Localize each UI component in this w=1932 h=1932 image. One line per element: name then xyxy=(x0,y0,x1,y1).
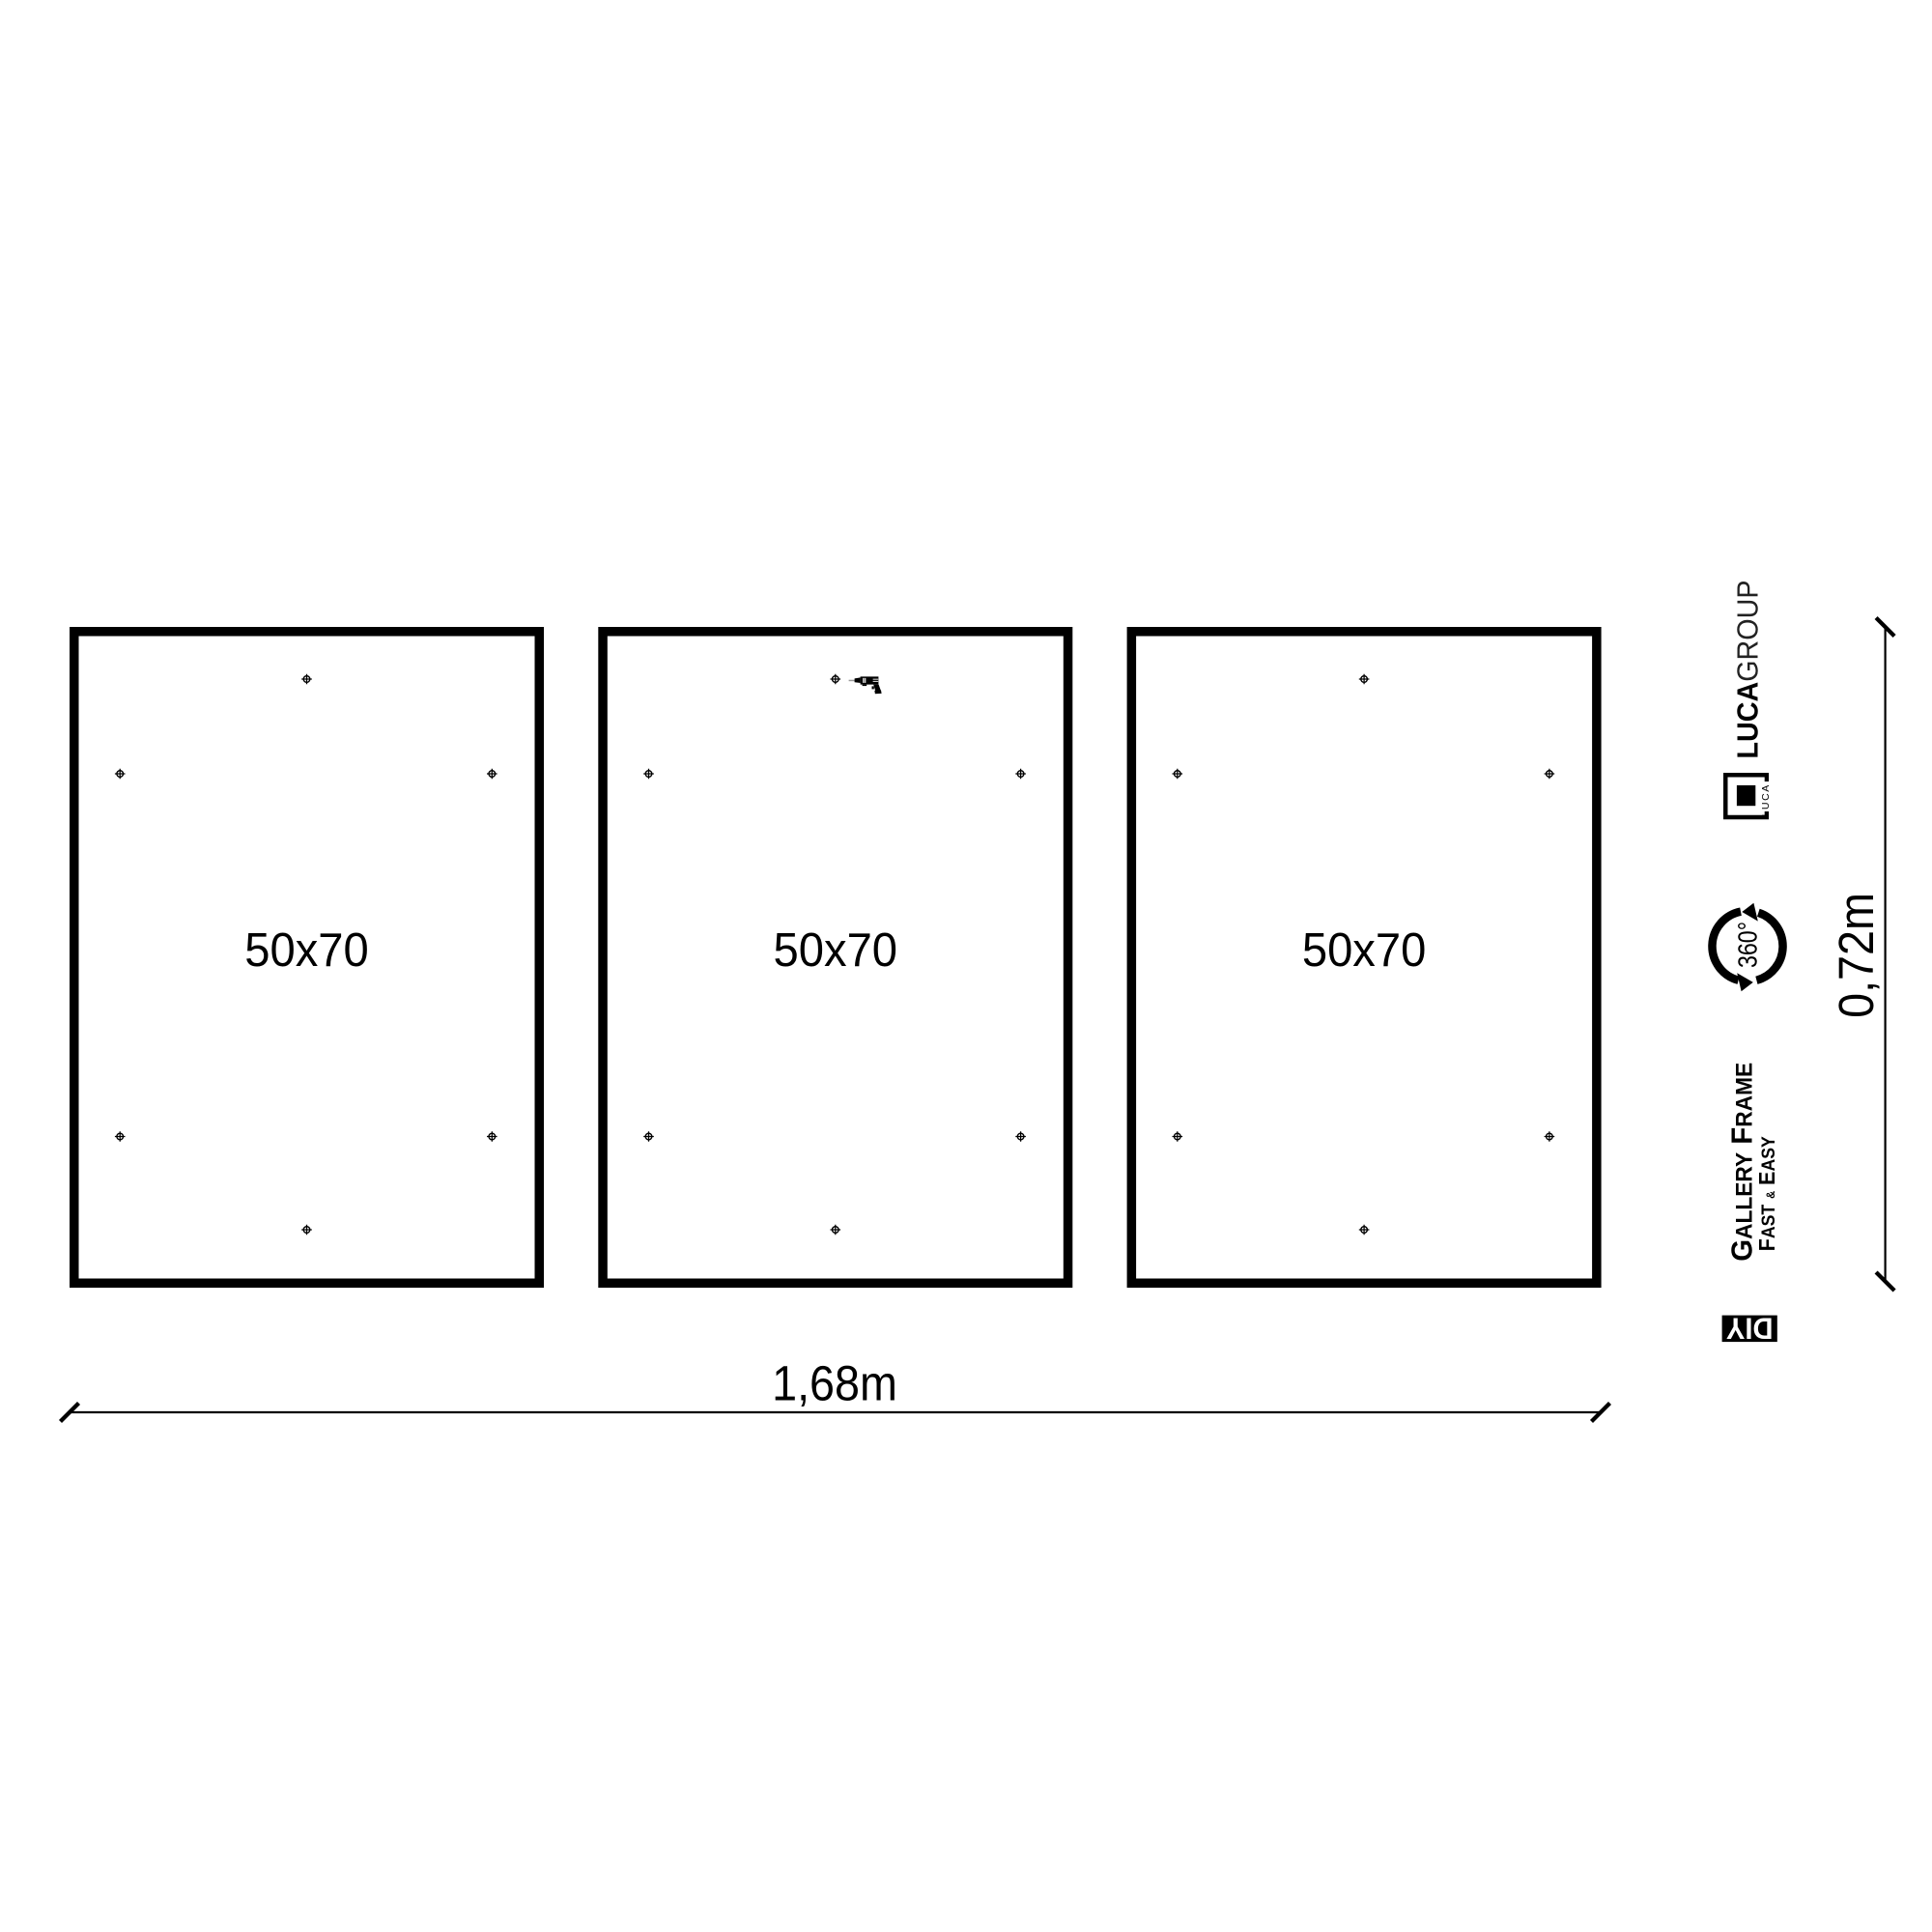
svg-text:50x70: 50x70 xyxy=(244,923,369,977)
svg-text:1,68m: 1,68m xyxy=(772,1356,897,1411)
svg-text:LUCAGROUP: LUCAGROUP xyxy=(1730,581,1764,759)
svg-text:50x70: 50x70 xyxy=(1302,923,1427,977)
svg-text:0,72m: 0,72m xyxy=(1829,893,1884,1018)
svg-text:360°: 360° xyxy=(1732,922,1762,968)
svg-text:50x70: 50x70 xyxy=(774,923,898,977)
svg-text:LUCA: LUCA xyxy=(1760,783,1772,816)
svg-text:DIY: DIY xyxy=(1726,1312,1774,1347)
